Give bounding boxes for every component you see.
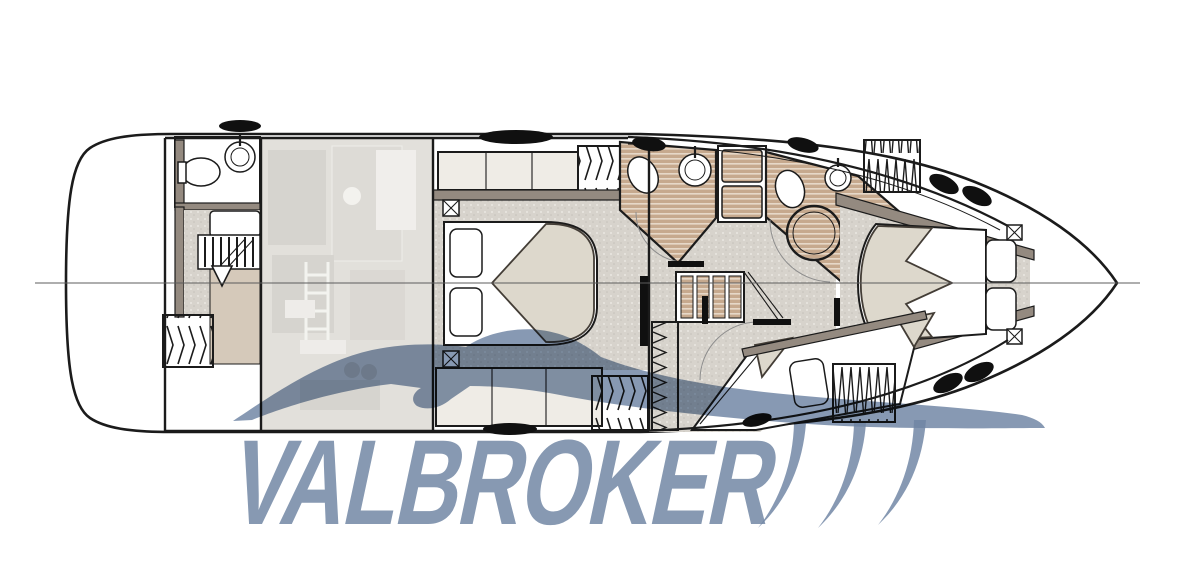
aft-toilet	[182, 158, 220, 186]
x-box	[1007, 329, 1022, 344]
aft-stairs-railing	[198, 235, 260, 269]
door-handle	[702, 296, 708, 324]
day-head-sink	[679, 154, 711, 186]
master-pillow	[450, 288, 482, 336]
aft-section	[163, 134, 260, 367]
master-pillow	[450, 229, 482, 277]
aft-berth	[210, 211, 260, 237]
floorplan-svg: VALBROKER	[0, 0, 1191, 573]
door-handle	[834, 298, 840, 326]
bow-cushion	[986, 240, 1016, 282]
door-handle	[668, 261, 704, 267]
speed-blade	[878, 420, 926, 525]
ensuite-sink	[825, 165, 851, 191]
bulkhead-door	[640, 276, 649, 346]
bow-cushion	[986, 288, 1016, 330]
watermark-text: VALBROKER	[220, 415, 789, 550]
aft-vent-hatch	[163, 315, 213, 367]
door-handle	[753, 319, 791, 325]
master-cabinets-top	[438, 152, 578, 190]
round-shower	[787, 206, 841, 260]
shower-column	[718, 146, 766, 222]
aft-sink	[225, 142, 255, 172]
aft-floor-teak	[210, 268, 260, 364]
x-box	[1007, 225, 1022, 240]
speed-blade	[818, 423, 866, 528]
x-box	[443, 200, 459, 216]
yacht-floorplan-canvas: VALBROKER	[0, 0, 1191, 573]
